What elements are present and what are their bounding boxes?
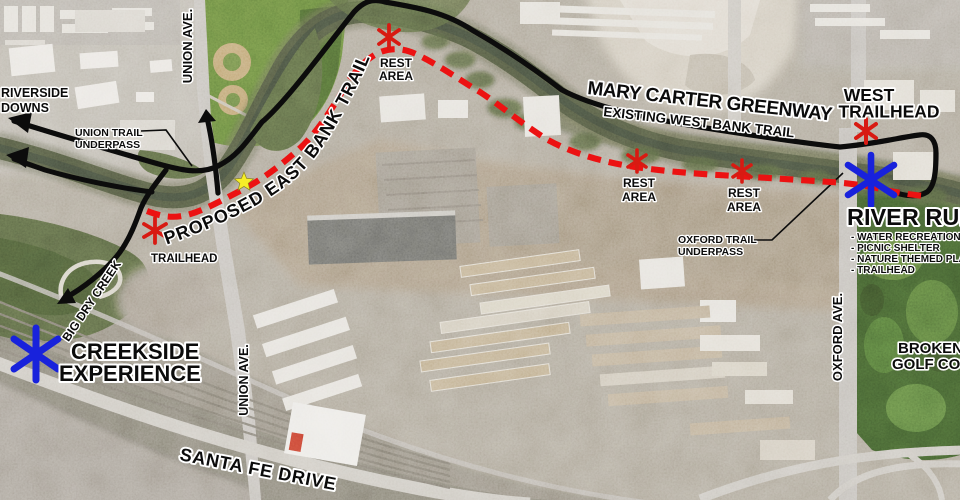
svg-text:UNION AVE.: UNION AVE.	[237, 344, 251, 416]
svg-text:DOWNS: DOWNS	[1, 101, 49, 115]
svg-text:RIVERSIDE: RIVERSIDE	[1, 86, 68, 100]
svg-text:REST: REST	[623, 176, 656, 190]
svg-text:TRAILHEAD: TRAILHEAD	[838, 102, 939, 122]
svg-text:- WATER RECREATION: - WATER RECREATION	[851, 232, 960, 243]
svg-text:- NATURE THEMED PLAY: - NATURE THEMED PLAY	[851, 254, 960, 265]
svg-text:EXPERIENCE: EXPERIENCE	[59, 361, 201, 386]
svg-text:UNION AVE.: UNION AVE.	[180, 9, 195, 83]
svg-text:AREA: AREA	[379, 69, 413, 83]
svg-text:AREA: AREA	[622, 190, 656, 204]
svg-text:REST: REST	[728, 186, 761, 200]
svg-text:BROKEN T: BROKEN T	[898, 340, 960, 357]
svg-text:UNDERPASS: UNDERPASS	[75, 139, 140, 151]
svg-text:OXFORD TRAIL: OXFORD TRAIL	[678, 234, 757, 246]
svg-text:UNDERPASS: UNDERPASS	[678, 246, 743, 258]
svg-text:OXFORD AVE.: OXFORD AVE.	[830, 293, 845, 381]
svg-text:UNION TRAIL: UNION TRAIL	[75, 127, 143, 139]
svg-text:RIVER RUN: RIVER RUN	[847, 204, 960, 230]
svg-text:TRAILHEAD: TRAILHEAD	[151, 253, 217, 265]
svg-text:- PICNIC SHELTER: - PICNIC SHELTER	[851, 243, 940, 254]
svg-text:- TRAILHEAD: - TRAILHEAD	[851, 265, 915, 276]
svg-text:GOLF COU: GOLF COU	[892, 356, 960, 373]
svg-text:AREA: AREA	[727, 200, 761, 214]
svg-text:REST: REST	[380, 56, 413, 70]
